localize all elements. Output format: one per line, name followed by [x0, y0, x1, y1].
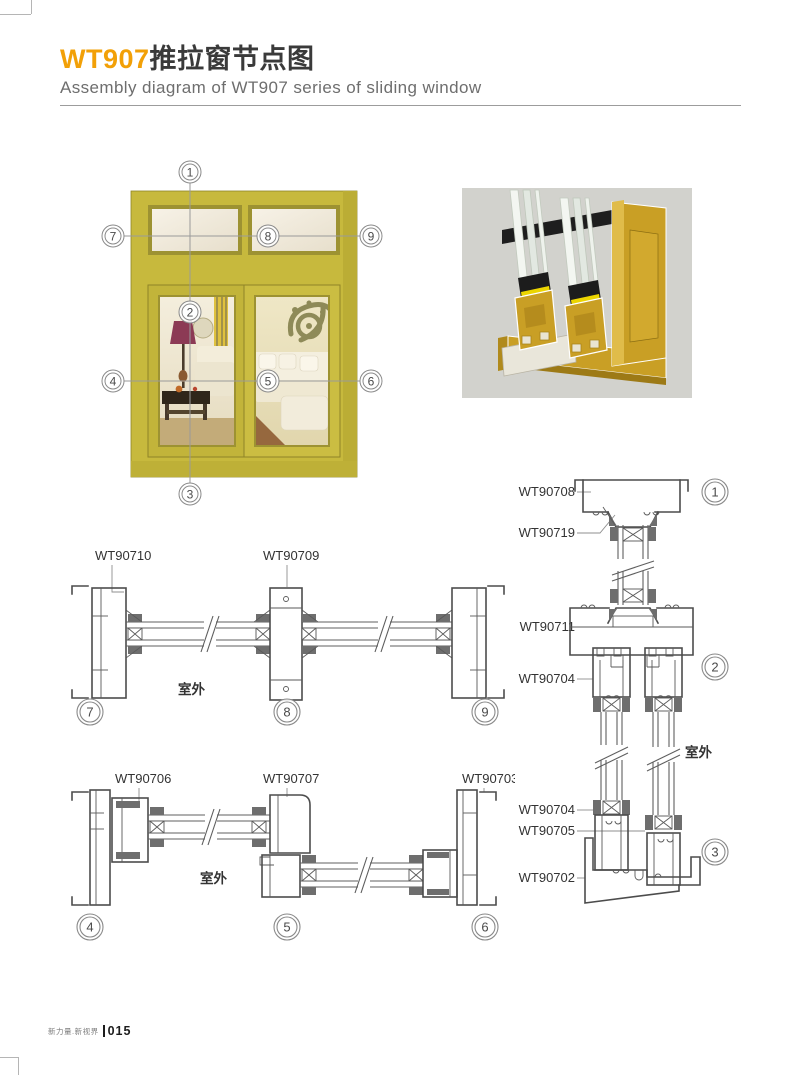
svg-text:5: 5: [265, 375, 272, 389]
glass-run-right: [302, 610, 452, 658]
header-divider: [60, 105, 741, 106]
transom-profile: [570, 605, 693, 667]
profile-label-wt90702: WT90702: [519, 870, 575, 885]
sash-top-rails: [593, 648, 682, 712]
profile-3d-render-svg: [462, 188, 692, 398]
crop-mark-top-left-v: [31, 0, 32, 14]
profile-label-wt90711: WT90711: [520, 619, 575, 634]
page-footer: 新力量.新视界 015: [48, 1024, 131, 1038]
section-callout-5: 5: [274, 914, 300, 940]
window-overview-diagram: 1 7 8 9 2 4 5 6 3: [95, 158, 385, 508]
glass-run-upper: [148, 807, 270, 847]
profile-label-wt90708: WT90708: [519, 484, 575, 499]
section-callout-1: 1: [702, 479, 728, 505]
section-callout-9: 9: [472, 699, 498, 725]
callout-2: 2: [179, 301, 201, 323]
outdoor-label-top: 室外: [178, 681, 205, 697]
svg-text:3: 3: [187, 488, 194, 502]
profile-label-wt90710: WT90710: [95, 548, 151, 563]
series-code: WT907: [60, 44, 150, 74]
svg-text:5: 5: [283, 920, 290, 935]
page-header: WT907推拉窗节点图 Assembly diagram of WT907 se…: [60, 44, 750, 106]
profile-label-wt90706: WT90706: [115, 771, 171, 786]
section-callout-4: 4: [77, 914, 103, 940]
callout-8: 8: [257, 225, 279, 247]
callout-4: 4: [102, 370, 124, 392]
left-jamb-profile: [90, 790, 110, 905]
callout-7: 7: [102, 225, 124, 247]
callout-3: 3: [179, 483, 201, 505]
right-jamb-profile: [452, 588, 486, 698]
glass-vertical-sashes: [595, 712, 680, 815]
left-jamb-profile: [92, 588, 126, 698]
interlock-stile-lower: [262, 855, 300, 897]
svg-text:1: 1: [711, 485, 718, 500]
callout-6: 6: [360, 370, 382, 392]
profile-label-wt90707: WT90707: [263, 771, 319, 786]
svg-text:9: 9: [368, 230, 375, 244]
profile-label-wt90709: WT90709: [263, 548, 319, 563]
callout-9: 9: [360, 225, 382, 247]
section-horizontal-bottom: WT90706 WT90707 WT90703: [60, 765, 515, 950]
svg-text:7: 7: [110, 230, 117, 244]
glass-run-lower: [300, 855, 423, 895]
head-frame-profile: [575, 480, 688, 527]
crop-mark-bottom-left-h: [0, 1057, 18, 1058]
svg-text:3: 3: [711, 845, 718, 860]
footer-brand-text: 新力量.新视界: [48, 1026, 99, 1037]
svg-text:1: 1: [187, 166, 194, 180]
section-callout-3: 3: [702, 839, 728, 865]
title-chinese: 推拉窗节点图: [150, 44, 315, 74]
svg-text:6: 6: [481, 920, 488, 935]
outdoor-label-vertical: 室外: [685, 744, 713, 760]
right-sash: [244, 285, 340, 457]
profile-3d-render: [462, 188, 692, 398]
profile-label-wt90704-a: WT90704: [519, 671, 575, 686]
frame-edge-brackets: [72, 792, 496, 905]
section-vertical-right: WT90708 WT90719 WT90711 WT90704 WT90704 …: [505, 475, 755, 915]
page-title: WT907推拉窗节点图: [60, 44, 750, 74]
svg-text:7: 7: [86, 705, 93, 720]
footer-page-number: 015: [108, 1024, 132, 1038]
glass-run-left: [126, 610, 270, 658]
svg-text:6: 6: [368, 375, 375, 389]
section-callout-2: 2: [702, 654, 728, 680]
right-jamb-profile: [457, 790, 477, 905]
left-sash-stile: [112, 798, 148, 862]
section-callout-7: 7: [77, 699, 103, 725]
crop-mark-bottom-left-v: [18, 1057, 19, 1075]
callout-1: 1: [179, 161, 201, 183]
profile-label-wt90704-b: WT90704: [519, 802, 575, 817]
profile-label-wt90719: WT90719: [519, 525, 575, 540]
right-sash-stile: [423, 850, 457, 897]
section-callout-8: 8: [274, 699, 300, 725]
frame-edge-brackets: [72, 586, 504, 698]
footer-divider: [103, 1025, 105, 1037]
center-mullion-profile: [270, 588, 302, 700]
svg-text:9: 9: [481, 705, 488, 720]
section-callout-6: 6: [472, 914, 498, 940]
leader-lines: [577, 492, 645, 878]
svg-text:8: 8: [283, 705, 290, 720]
svg-text:4: 4: [110, 375, 117, 389]
profile-label-wt90705: WT90705: [519, 823, 575, 838]
svg-text:8: 8: [265, 230, 272, 244]
svg-text:2: 2: [187, 306, 194, 320]
callout-5: 5: [257, 370, 279, 392]
glass-vertical-top: [610, 525, 656, 605]
crop-mark-top-left-h: [0, 14, 31, 15]
svg-text:4: 4: [86, 920, 93, 935]
section-horizontal-top: WT90710 WT90709 室外: [60, 542, 515, 734]
outdoor-label-bottom: 室外: [200, 870, 227, 886]
page-subtitle: Assembly diagram of WT907 series of slid…: [60, 78, 750, 98]
svg-text:2: 2: [711, 660, 718, 675]
